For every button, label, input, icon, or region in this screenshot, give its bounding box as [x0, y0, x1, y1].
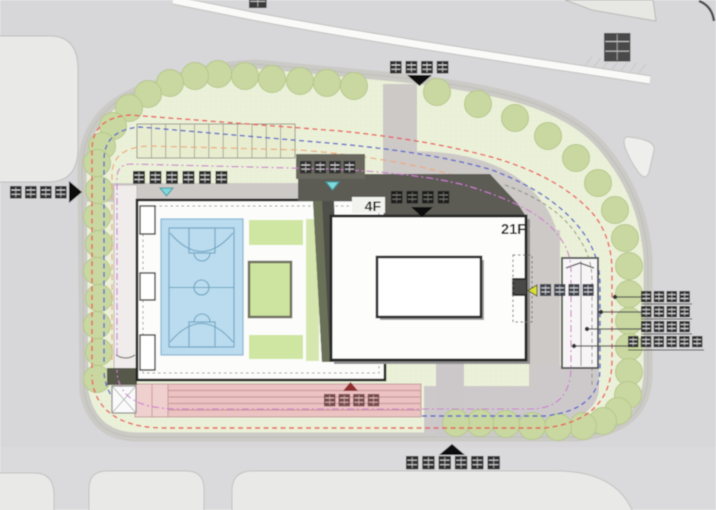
svg-text:4F: 4F — [365, 198, 382, 214]
svg-text:21F: 21F — [501, 222, 526, 238]
